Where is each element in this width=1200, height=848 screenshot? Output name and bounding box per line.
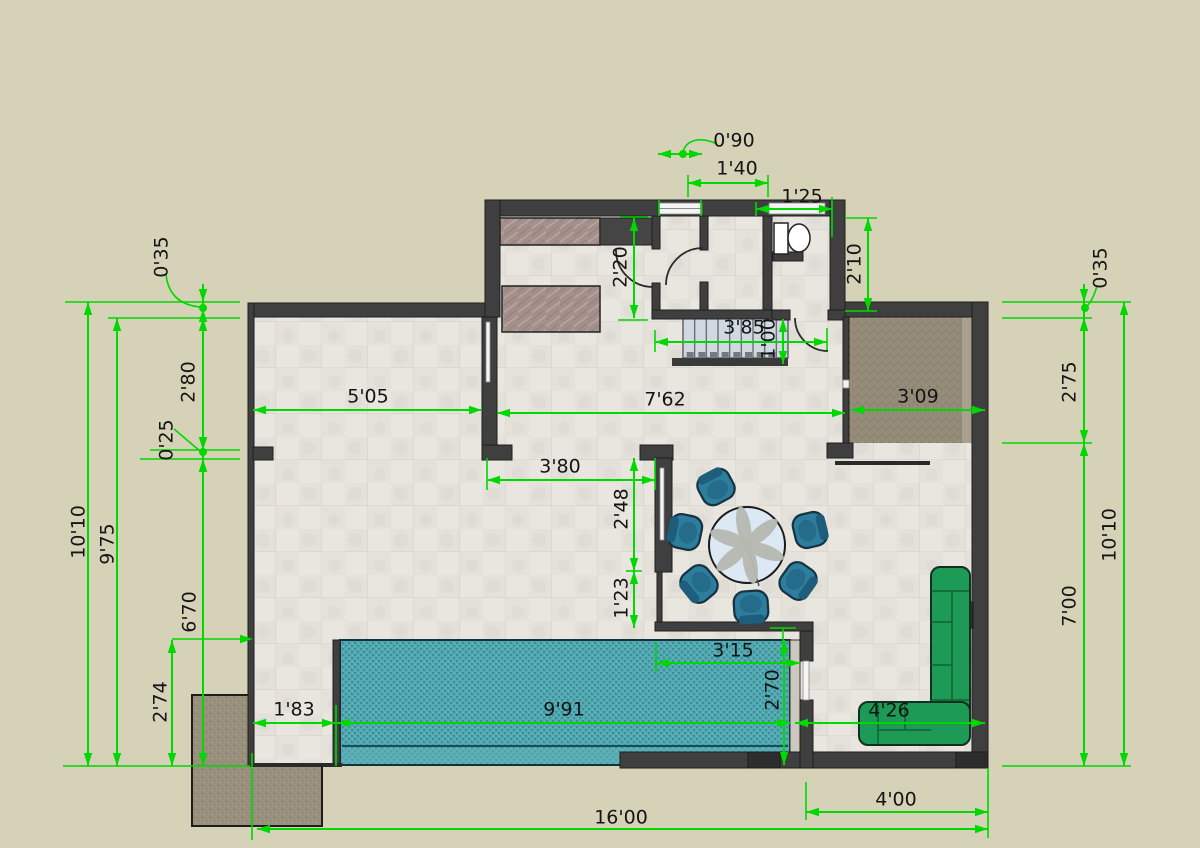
dimension-label: 0'90 — [713, 130, 755, 152]
dimension-label: 10'10 — [1099, 508, 1121, 562]
dimension-label: 9'91 — [543, 699, 585, 721]
dimension-label: 0'35 — [1090, 247, 1112, 289]
dimension-label: 2'70 — [762, 669, 784, 711]
wall-right — [972, 302, 988, 766]
wall-bottom-column-a — [748, 752, 780, 768]
wall-terrace-bottom-stub — [827, 443, 853, 458]
wall-pool-right-b — [800, 700, 813, 768]
stair-tread-shadow — [710, 352, 717, 357]
wall-main-top-left — [248, 303, 485, 317]
wall-bottom-column-b — [956, 752, 988, 768]
wall-dining-bottom — [655, 622, 813, 631]
sliding-glass-a — [486, 322, 490, 382]
floor-plan-drawing: 0'901'401'252'102'203'851'000'352'800'25… — [0, 0, 1200, 848]
stair-tread-shadow — [687, 352, 694, 357]
dimension-label: 6'70 — [179, 591, 201, 633]
toilet-bowl — [788, 224, 810, 252]
wall-kitchen-right-a — [652, 216, 660, 249]
dimension-label: 2'74 — [150, 681, 172, 723]
terrace-edge — [962, 317, 972, 443]
dimension-label: 1'40 — [716, 158, 758, 180]
floor-edge-line — [250, 763, 342, 767]
dimension-label: 1'83 — [273, 699, 315, 721]
dimension-label: 7'62 — [644, 389, 686, 411]
dimension-label: 2'80 — [178, 361, 200, 403]
kitchen-counter-top — [500, 218, 600, 245]
dimension-label: 0'35 — [151, 236, 173, 278]
dimension-label: 1'00 — [758, 318, 780, 360]
floor-plan-canvas: 0'901'401'252'102'203'851'000'352'800'25… — [0, 0, 1200, 848]
wall-left-column — [253, 447, 273, 460]
dimension-label: 16'00 — [594, 807, 648, 829]
dining-chair — [733, 590, 769, 625]
dimension-label: 4'26 — [868, 700, 910, 722]
dimension-label: 3'09 — [897, 386, 939, 408]
dimension-label: 2'10 — [844, 243, 866, 285]
dimension-label: 2'48 — [611, 488, 633, 530]
terrace-slab — [849, 317, 970, 443]
stair-tread-shadow — [722, 352, 729, 357]
wall-pool-right-a — [800, 631, 813, 661]
wall-dining-left-thin — [657, 572, 662, 624]
dimension-label: 2'75 — [1059, 361, 1081, 403]
dimension-label: 0'25 — [156, 419, 178, 461]
sliding-glass-c — [803, 661, 809, 700]
sliding-glass-b — [660, 468, 664, 540]
dimension-label: 1'23 — [611, 577, 633, 619]
wall-hall-a — [700, 216, 708, 250]
dimension-label: 3'80 — [539, 456, 581, 478]
kitchen-appliance — [600, 218, 652, 245]
dim-1-23: 1'23 — [611, 571, 639, 628]
dimension-label: 4'00 — [875, 789, 917, 811]
wall-bath-bottom-b — [828, 310, 845, 320]
dimension-label: 9'75 — [97, 523, 119, 565]
pool-coping — [790, 640, 800, 765]
toilet-tank — [774, 223, 788, 254]
dimension-label: 2'20 — [610, 246, 632, 288]
stair-tread-shadow — [745, 352, 752, 357]
dim-1-00: 1'00 — [758, 318, 788, 364]
wall-bathroom-left — [763, 216, 772, 313]
toilet — [774, 223, 810, 254]
dimension-label: 3'15 — [712, 640, 754, 662]
dimension-label: 1'25 — [781, 186, 823, 208]
dimension-label: 5'05 — [347, 386, 389, 408]
dimension-label: 10'10 — [68, 505, 90, 559]
stair-tread-shadow — [733, 352, 740, 357]
wall-upper-left — [485, 200, 500, 317]
wall-slider-stub — [482, 445, 512, 460]
door-mat-line — [835, 461, 930, 465]
dimension-label: 7'00 — [1059, 585, 1081, 627]
terrace-wall-gap — [843, 380, 849, 388]
wall-left — [248, 303, 254, 766]
stair-tread-shadow — [698, 352, 705, 357]
kitchen-island — [502, 286, 600, 332]
